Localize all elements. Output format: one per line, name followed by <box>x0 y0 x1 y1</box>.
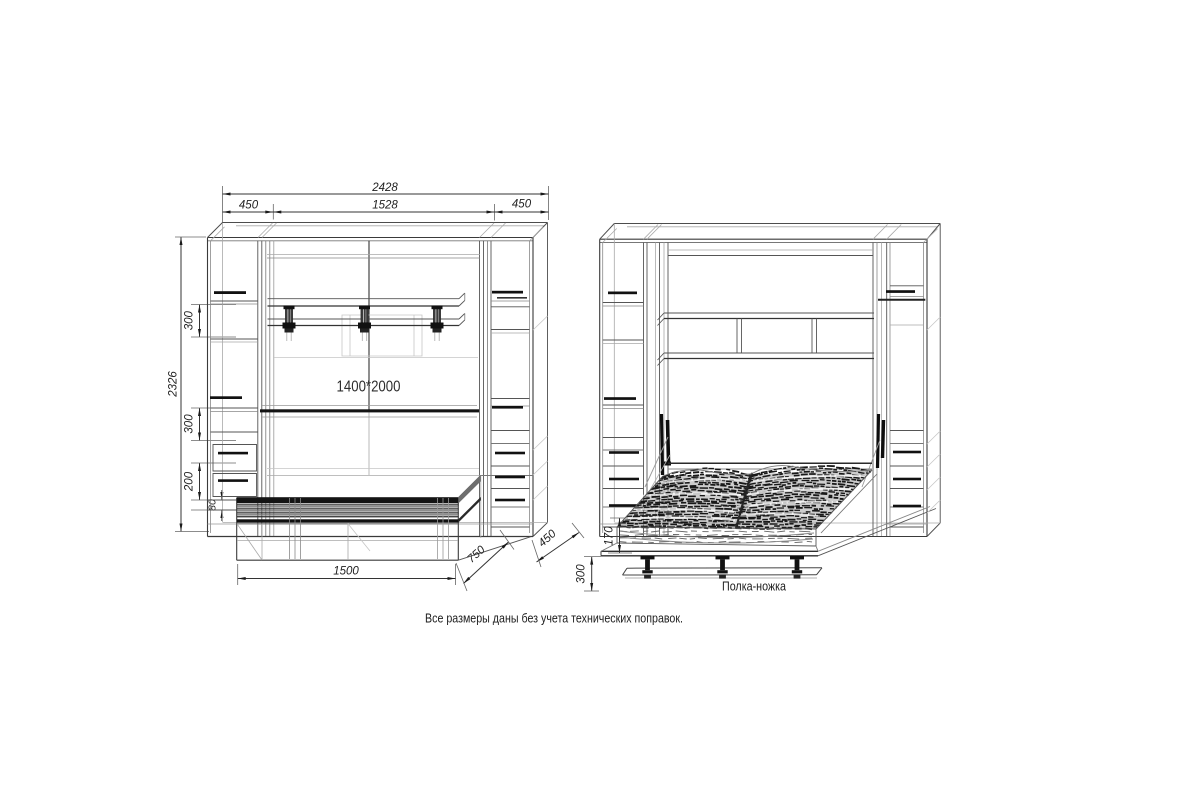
svg-text:450: 450 <box>239 200 259 212</box>
svg-text:1528: 1528 <box>372 200 398 212</box>
svg-text:1400*2000: 1400*2000 <box>337 379 401 396</box>
svg-text:Полка-ножка: Полка-ножка <box>722 579 787 594</box>
svg-text:80: 80 <box>207 499 219 511</box>
svg-text:450: 450 <box>512 199 532 211</box>
svg-text:300: 300 <box>184 311 196 331</box>
svg-text:2326: 2326 <box>168 371 180 398</box>
svg-text:Все размеры даны без учета тех: Все размеры даны без учета технических п… <box>425 611 683 626</box>
svg-text:300: 300 <box>576 564 588 584</box>
svg-text:1500: 1500 <box>333 566 359 578</box>
svg-text:170: 170 <box>604 526 616 546</box>
svg-text:200: 200 <box>184 471 196 492</box>
svg-text:2428: 2428 <box>371 182 398 194</box>
svg-text:300: 300 <box>184 414 196 434</box>
